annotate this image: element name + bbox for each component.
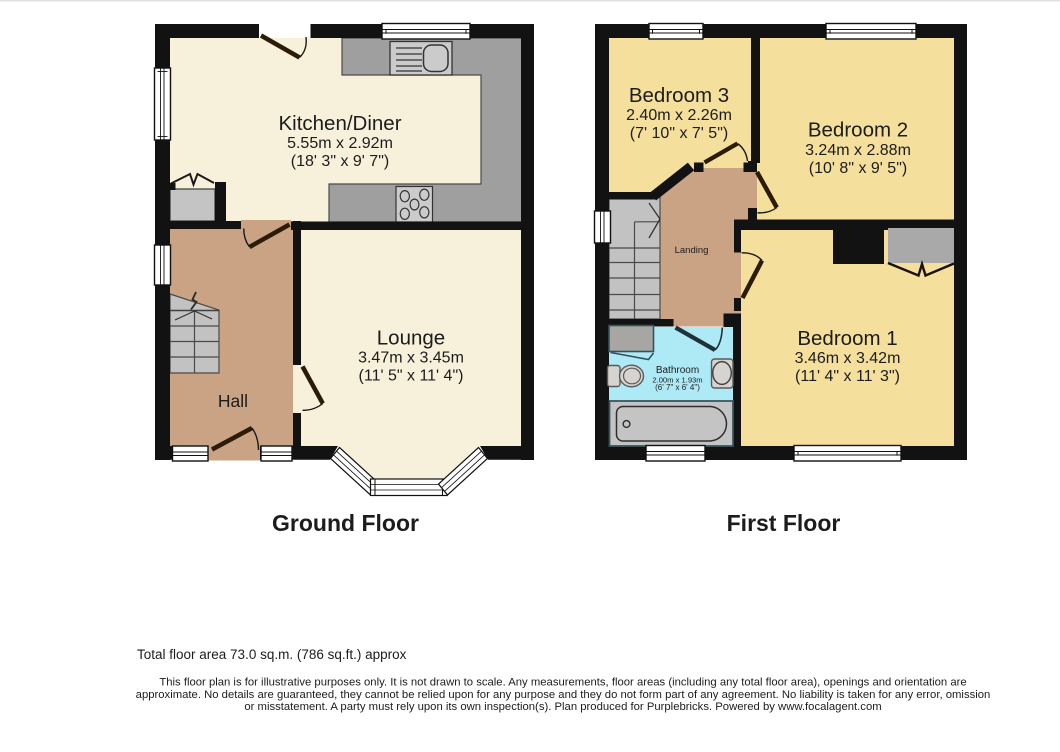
svg-text:(7' 10" x 7' 5"): (7' 10" x 7' 5") [630, 125, 728, 142]
svg-text:3.46m x 3.42m: 3.46m x 3.42m [795, 350, 901, 367]
svg-text:First Floor: First Floor [727, 510, 841, 536]
svg-text:(11' 5" x 11' 4"): (11' 5" x 11' 4") [359, 368, 464, 385]
svg-text:Hall: Hall [218, 391, 248, 411]
svg-text:Total floor area 73.0 sq.m. (7: Total floor area 73.0 sq.m. (786 sq.ft.)… [137, 647, 407, 662]
svg-text:Bedroom 3: Bedroom 3 [629, 84, 729, 107]
svg-text:approximate. No details are gu: approximate. No details are guaranteed, … [136, 689, 991, 701]
svg-text:(10' 8" x 9' 5"): (10' 8" x 9' 5") [809, 160, 907, 177]
svg-text:3.24m x 2.88m: 3.24m x 2.88m [805, 142, 911, 159]
svg-text:5.55m x 2.92m: 5.55m x 2.92m [287, 135, 393, 152]
svg-text:Kitchen/Diner: Kitchen/Diner [278, 112, 401, 135]
svg-text:3.47m x 3.45m: 3.47m x 3.45m [358, 350, 464, 367]
svg-text:(6' 7" x 6' 4"): (6' 7" x 6' 4") [655, 383, 700, 392]
svg-text:(11' 4" x 11' 3"): (11' 4" x 11' 3") [795, 368, 900, 385]
svg-text:or misstatement. A party must: or misstatement. A party must rely upon … [244, 701, 881, 713]
svg-text:Ground Floor: Ground Floor [272, 510, 419, 536]
svg-text:Bedroom 2: Bedroom 2 [808, 119, 908, 142]
svg-text:(18' 3" x 9' 7"): (18' 3" x 9' 7") [291, 153, 389, 170]
svg-text:Lounge: Lounge [377, 327, 445, 350]
svg-text:2.40m x 2.26m: 2.40m x 2.26m [626, 107, 732, 124]
svg-text:Bedroom 1: Bedroom 1 [797, 327, 897, 350]
svg-text:Landing: Landing [675, 245, 709, 256]
svg-text:Bathroom: Bathroom [656, 365, 699, 376]
svg-text:This floor plan is for illustr: This floor plan is for illustrative purp… [159, 677, 966, 689]
